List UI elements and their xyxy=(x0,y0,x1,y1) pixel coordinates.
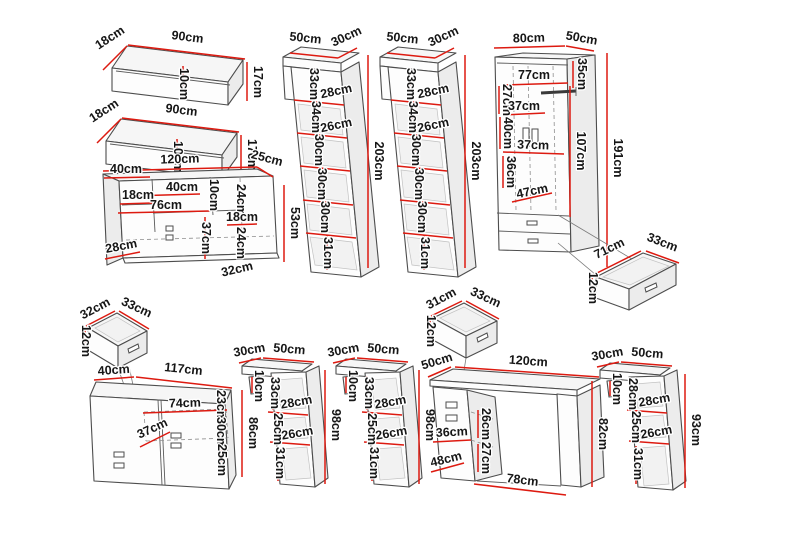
dim-shelf1-width: 90cm xyxy=(171,28,204,46)
cabinet-handle xyxy=(166,226,173,231)
dim-bc3-10: 10cm xyxy=(610,373,624,405)
dim-col2-s6: 31cm xyxy=(418,237,432,269)
dim-cab-76: 76cm xyxy=(150,198,182,212)
dim-sb-74: 74cm xyxy=(169,395,201,410)
dim-bc2-s3: 31cm xyxy=(367,447,381,479)
dim-col2-depth: 30cm xyxy=(426,23,461,49)
dim-col2-s1: 33cm xyxy=(404,68,418,100)
wall-shelf-upper: 18cm 90cm 10cm 17cm xyxy=(93,23,265,105)
dim-wardrobe-37b: 37cm xyxy=(517,137,549,152)
dim-wardrobe-77: 77cm xyxy=(518,68,550,82)
dim-cab-40l: 40cm xyxy=(110,162,142,176)
dim-sb-25: 25cm xyxy=(215,444,229,476)
dim-col1-depth: 30cm xyxy=(329,23,364,49)
dim-col2-s4: 30cm xyxy=(412,168,426,200)
dim-wardrobe-height: 191cm xyxy=(611,139,625,178)
dim-shelf1-depth: 18cm xyxy=(93,23,127,52)
dim-col1-s6: 31cm xyxy=(321,237,335,269)
dim-sb-depth: 40cm xyxy=(97,362,130,378)
dim-ddrawer-depth: 33cm xyxy=(468,284,503,310)
wardrobe-drawer-handle-lower xyxy=(528,239,538,243)
dim-cab-height: 53cm xyxy=(288,207,302,239)
sideboard-handle xyxy=(171,443,181,448)
dim-col1-width: 50cm xyxy=(289,29,322,46)
dim-wardrobe-36: 36cm xyxy=(504,156,518,188)
dim-bc3-width: 50cm xyxy=(631,345,664,362)
desk-handle xyxy=(446,415,457,421)
diagram-shape xyxy=(494,46,565,48)
diagram-shape xyxy=(120,203,153,204)
furniture-dimension-diagram: 18cm 90cm 10cm 17cm 18cm 90cm 10cm 17cm xyxy=(0,0,800,533)
dim-bc1-depth: 30cm xyxy=(232,340,266,359)
dim-wdrawer-height: 12cm xyxy=(586,272,600,304)
dim-bc1-s3: 31cm xyxy=(273,447,287,479)
dim-bc2-10: 10cm xyxy=(346,370,360,402)
dim-sb-height: 86cm xyxy=(246,417,260,449)
dim-desk-depth: 50cm xyxy=(419,350,454,373)
dim-wardrobe-107: 107cm xyxy=(574,132,588,171)
diagram-shape xyxy=(104,177,150,178)
sideboard: 40cm 117cm 74cm 37cm 23cm 30cm 25cm 86cm xyxy=(90,360,260,489)
dim-col2-width: 50cm xyxy=(386,29,419,46)
dim-col1-s1: 33cm xyxy=(307,68,321,100)
dim-cab-40m: 40cm xyxy=(166,180,198,194)
dim-desk-36: 36cm xyxy=(435,424,468,440)
dim-cab-37: 37cm xyxy=(199,222,213,254)
dim-shelf1-inner: 10cm xyxy=(177,68,191,100)
desk-handle xyxy=(446,402,457,408)
drawer-left: 32cm 33cm 12cm xyxy=(78,294,154,368)
dim-sb-width: 117cm xyxy=(164,360,203,378)
dim-cab-18r: 18cm xyxy=(226,210,258,224)
dim-bc3-s3: 31cm xyxy=(631,448,645,480)
cabinet-handle xyxy=(166,235,173,240)
dim-desk-26: 26cm xyxy=(479,408,493,440)
dim-wardrobe-width: 80cm xyxy=(513,30,545,45)
dim-bc1-10: 10cm xyxy=(252,370,266,402)
dim-shelf1-height: 17cm xyxy=(251,66,265,98)
dim-col2-s3: 30cm xyxy=(409,134,423,166)
dim-wardrobe-35: 35cm xyxy=(575,58,589,90)
dim-ddrawer-height: 12cm xyxy=(424,315,438,347)
dim-cab-10: 10cm xyxy=(207,179,221,211)
dim-wardrobe-37a: 37cm xyxy=(508,99,540,113)
dim-cab-32: 32cm xyxy=(220,259,254,280)
dim-bc1-width: 50cm xyxy=(273,341,306,358)
dim-wardrobe-40: 40cm xyxy=(501,117,515,149)
dim-bc3-depth: 30cm xyxy=(590,344,624,363)
sideboard-handle xyxy=(114,452,124,457)
dim-col2-height: 203cm xyxy=(469,142,483,181)
sideboard-handle xyxy=(171,433,181,438)
dim-wdrawer-depth: 33cm xyxy=(645,230,680,255)
dim-desk-27: 27cm xyxy=(479,442,493,474)
dim-col1-s3: 30cm xyxy=(312,134,326,166)
wardrobe-drawer-handle-upper xyxy=(527,221,537,225)
dim-col2-s5: 30cm xyxy=(415,201,429,233)
dim-bc1-height: 98cm xyxy=(329,409,343,441)
sideboard-handle xyxy=(114,463,124,468)
tall-cabinet-right: 50cm 30cm 33cm 28cm 34cm 26cm 30cm 30cm … xyxy=(380,23,483,277)
bookcase-left: 30cm 50cm 10cm 33cm 28cm 25cm 26cm 31cm … xyxy=(232,340,343,487)
dim-shelf2-width: 90cm xyxy=(165,101,198,119)
diagram-shape xyxy=(227,224,257,225)
dim-desk-height: 82cm xyxy=(596,418,610,450)
dim-bc2-depth: 30cm xyxy=(326,340,360,359)
desk: 50cm 120cm 26cm 36cm 27cm 48cm 78cm 82cm xyxy=(419,350,610,495)
dim-bc3-height: 93cm xyxy=(689,414,703,446)
dim-wardrobe-depth: 50cm xyxy=(565,28,599,47)
wardrobe-drawer: 71cm 33cm 12cm xyxy=(586,230,680,310)
dim-col1-s5: 30cm xyxy=(318,201,332,233)
dim-ldrawer-height: 12cm xyxy=(79,325,93,357)
diagram-shape xyxy=(566,46,594,51)
dim-col1-height: 203cm xyxy=(372,142,386,181)
diagram-canvas: 18cm 90cm 10cm 17cm 18cm 90cm 10cm 17cm xyxy=(0,0,800,533)
dim-col1-s4: 30cm xyxy=(315,168,329,200)
dim-desk-78: 78cm xyxy=(506,471,539,489)
wardrobe: 80cm 50cm 35cm 77cm 27cm 37cm 40cm 37cm … xyxy=(494,28,625,267)
dim-cab-24l: 24cm xyxy=(234,227,248,259)
dim-desk-width: 120cm xyxy=(508,353,548,370)
dim-bc3-s1: 28cm xyxy=(626,378,640,410)
dim-shelf2-depth: 18cm xyxy=(87,96,121,125)
desk-drawer: 31cm 33cm 12cm xyxy=(424,284,503,358)
dim-cab-width: 120cm xyxy=(160,151,199,166)
dim-ldrawer-depth: 33cm xyxy=(119,294,154,320)
dim-bc2-width: 50cm xyxy=(367,341,400,358)
